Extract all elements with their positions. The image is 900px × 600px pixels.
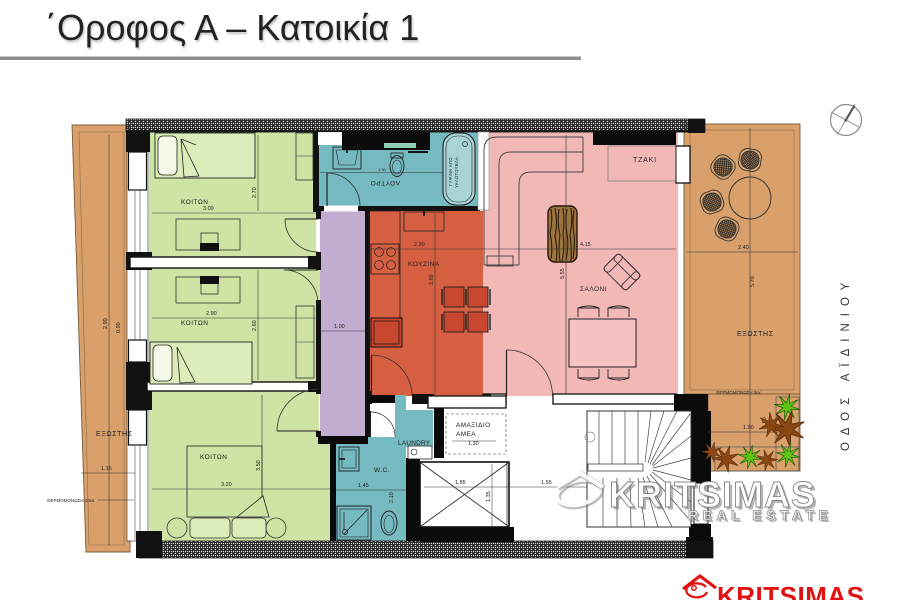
svg-text:3.20: 3.20 (221, 482, 232, 488)
svg-text:REAL ESTATE: REAL ESTATE (688, 507, 832, 523)
svg-text:1.45: 1.45 (358, 483, 369, 489)
svg-text:ΚΟΙΤΩΝ: ΚΟΙΤΩΝ (181, 320, 208, 327)
svg-text:ΓΥΨΙΝΗ ΑΠΟ: ΓΥΨΙΝΗ ΑΠΟ (448, 157, 453, 186)
svg-text:2.10: 2.10 (389, 492, 395, 503)
svg-text:1.35: 1.35 (486, 491, 492, 502)
svg-text:2.90: 2.90 (103, 318, 109, 329)
svg-text:ΤΖΑΚΙ: ΤΖΑΚΙ (633, 157, 657, 164)
svg-text:1.15: 1.15 (101, 466, 112, 472)
svg-text:ΛΟΥΤΡΟ: ΛΟΥΤΡΟ (370, 179, 400, 186)
svg-text:2.90: 2.90 (206, 311, 217, 317)
svg-text:ΕΞΩΣΤΗΣ: ΕΞΩΣΤΗΣ (737, 331, 774, 338)
svg-text:2.70: 2.70 (252, 187, 258, 198)
svg-text:1.30: 1.30 (468, 441, 479, 447)
svg-text:LAUNDRY: LAUNDRY (398, 440, 431, 447)
svg-text:ΘΕΡΜΟΜΟΝΩΣΗ 10εκ.: ΘΕΡΜΟΜΟΝΩΣΗ 10εκ. (47, 498, 95, 503)
svg-text:5.70: 5.70 (750, 276, 756, 287)
svg-text:1.90: 1.90 (743, 425, 754, 431)
svg-text:5.55: 5.55 (560, 268, 566, 279)
svg-text:ΣΑΛΟΝΙ: ΣΑΛΟΝΙ (580, 286, 607, 293)
svg-text:ΚΟΙΤΩΝ: ΚΟΙΤΩΝ (181, 199, 208, 206)
svg-text:W.C.: W.C. (374, 467, 390, 474)
svg-text:3.50: 3.50 (256, 460, 262, 471)
svg-text:2.60: 2.60 (429, 274, 435, 285)
svg-text:1.30: 1.30 (378, 167, 387, 172)
svg-text:3.00: 3.00 (203, 206, 214, 212)
svg-text:ΥΑΛΟΤΟΥΒΛΑ: ΥΑΛΟΤΟΥΒΛΑ (454, 157, 459, 188)
svg-text:KRITSIMAS: KRITSIMAS (717, 581, 865, 600)
svg-text:ΑΜΕΑ: ΑΜΕΑ (456, 431, 476, 438)
svg-text:ΚΟΙΤΩΝ: ΚΟΙΤΩΝ (200, 454, 227, 461)
svg-text:1.00: 1.00 (334, 324, 345, 330)
svg-text:ΑΜΑΞΙΔΙΟ: ΑΜΑΞΙΔΙΟ (456, 422, 491, 429)
svg-text:1.85: 1.85 (455, 480, 466, 486)
svg-text:0.90: 0.90 (116, 322, 122, 333)
svg-text:2.30: 2.30 (414, 242, 425, 248)
svg-text:2.40: 2.40 (738, 245, 749, 251)
svg-text:ΟΔΟΣ ΑΪΔΙΝΙΟΥ: ΟΔΟΣ ΑΪΔΙΝΙΟΥ (840, 276, 852, 451)
svg-text:ΘΕΡΜΟΜΟΝΩΣΗ 5εκ.: ΘΕΡΜΟΜΟΝΩΣΗ 5εκ. (716, 390, 762, 395)
svg-text:4.15: 4.15 (580, 242, 591, 248)
svg-text:1.55: 1.55 (541, 480, 552, 486)
svg-text:2.60: 2.60 (252, 320, 258, 331)
svg-text:ΕΞΩΣΤΗΣ: ΕΞΩΣΤΗΣ (96, 431, 133, 438)
